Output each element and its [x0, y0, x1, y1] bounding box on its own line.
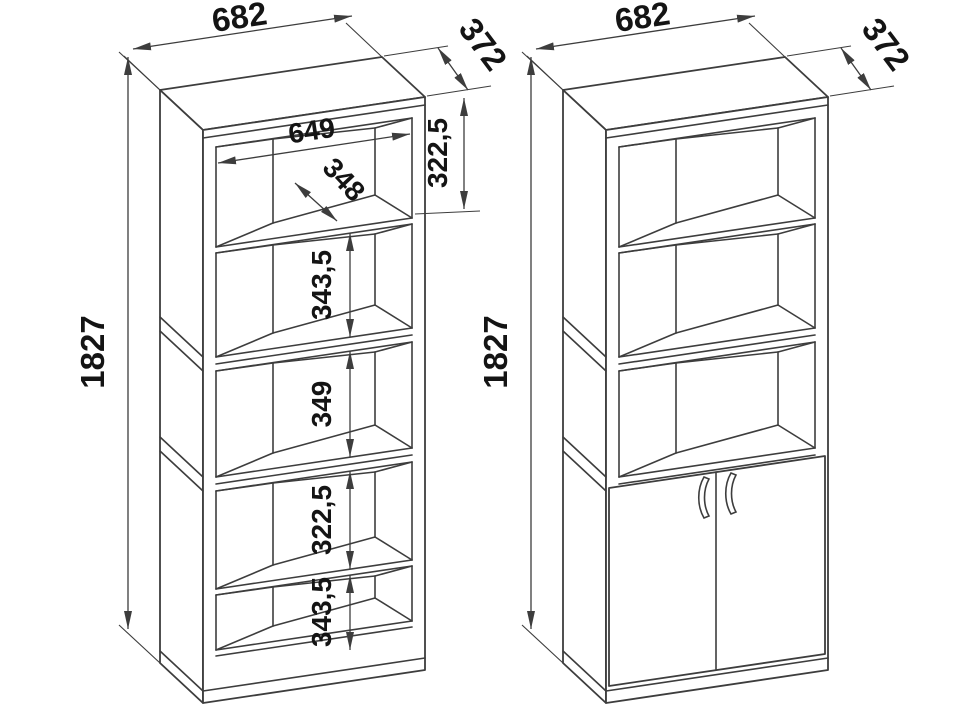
extension-line	[427, 86, 491, 96]
depth-label: 372	[452, 11, 515, 77]
extension-line	[527, 56, 563, 90]
door-panels	[609, 456, 825, 686]
extension-line	[346, 23, 382, 57]
extension-line	[384, 46, 448, 56]
extension-line	[830, 86, 894, 96]
side-panel	[563, 90, 606, 703]
extension-line	[787, 46, 851, 56]
width-label: 682	[612, 0, 672, 39]
dim-height-right: 1827	[477, 52, 563, 663]
open-shelf-unit-view	[160, 57, 425, 703]
dimension-line	[438, 48, 468, 90]
depth-label: 372	[855, 11, 918, 77]
door-unit-view	[563, 57, 828, 703]
cabinet-dimension-drawing: 1827 682 372 649 348 322,5 343,5 349 322…	[0, 0, 970, 728]
extension-line	[522, 625, 563, 663]
extension-line	[119, 625, 160, 663]
section-2-label: 343,5	[306, 250, 337, 320]
width-label: 682	[209, 0, 269, 39]
section-3-label: 349	[306, 381, 337, 428]
height-label: 1827	[74, 315, 111, 388]
dim-height-left: 1827	[74, 52, 160, 663]
side-panel	[160, 90, 203, 703]
section-5-label: 343,5	[306, 577, 337, 647]
technical-drawing-page: 1827 682 372 649 348 322,5 343,5 349 322…	[0, 0, 970, 728]
extension-line	[749, 23, 785, 57]
dimension-line	[841, 48, 871, 90]
section-4-label: 322,5	[306, 485, 337, 555]
extension-line	[124, 56, 160, 90]
height-label: 1827	[477, 315, 514, 388]
section-1-label: 322,5	[422, 118, 453, 188]
